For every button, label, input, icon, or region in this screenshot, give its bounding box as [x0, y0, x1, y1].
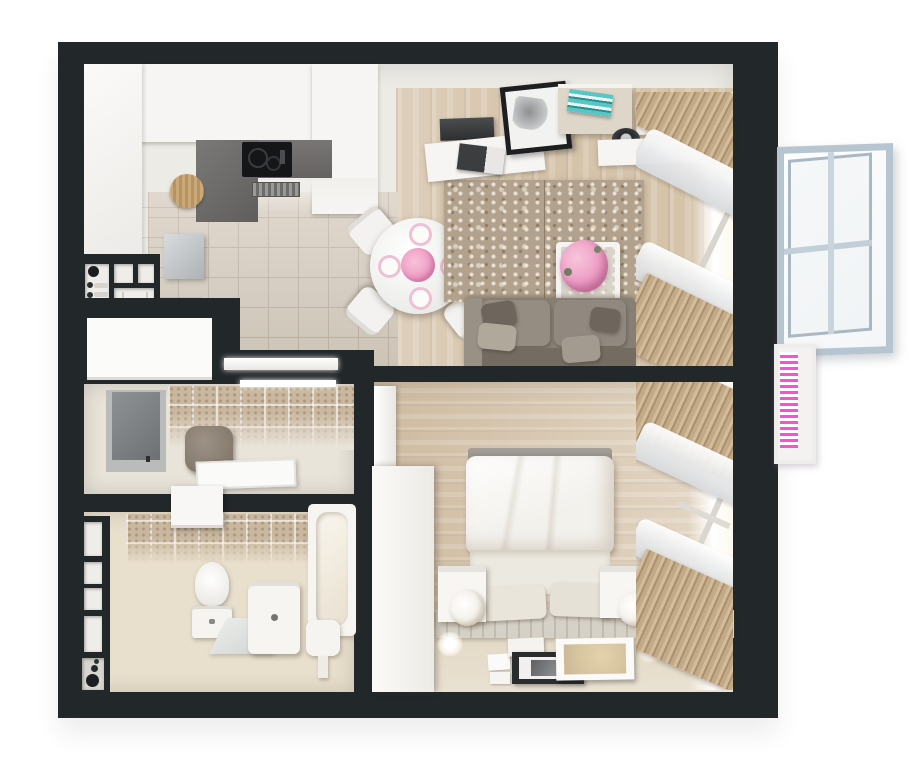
bedroom-radiator-panel [374, 386, 396, 466]
pink-bouquet [560, 240, 608, 292]
leaning-frame-large [556, 637, 635, 680]
pipe-icon [94, 659, 99, 664]
hall-alcove [106, 390, 166, 472]
open-casement-window [777, 143, 893, 357]
plate [409, 287, 432, 310]
throw-pillow [588, 306, 621, 334]
bath-stool [306, 620, 340, 656]
roll-icon [94, 283, 108, 288]
wall-light [436, 632, 464, 656]
bed-duvet [466, 456, 614, 554]
radiator-fins [780, 352, 798, 448]
bath-washer-box [171, 486, 223, 528]
cutting-board [170, 174, 204, 208]
pink-flower-centerpiece [401, 248, 435, 282]
roll-icon [94, 292, 108, 297]
flush-button-icon [209, 619, 215, 624]
induction-cooktop [242, 142, 292, 177]
socket-icon [146, 456, 150, 462]
vanity-sink [248, 582, 300, 654]
shelf-cell [138, 264, 154, 283]
alcove-shadow [112, 392, 160, 460]
window-mullion-vertical [828, 152, 834, 334]
plate [409, 223, 432, 246]
niche-slot [84, 562, 102, 584]
frame-sketch [511, 95, 549, 131]
hall-led-bar [240, 380, 336, 387]
throw-pillow [561, 334, 601, 363]
rug-seam [544, 180, 545, 302]
plate [378, 255, 401, 278]
wardrobe [372, 466, 434, 692]
stool-leg [318, 656, 328, 678]
frame-art [564, 643, 627, 674]
bathtub [308, 504, 356, 636]
bed-pillow [481, 584, 547, 621]
white-flower-bouquet [450, 590, 484, 626]
toilet-bowl [195, 562, 229, 606]
niche-slot [84, 616, 102, 652]
leaning-cards [490, 672, 510, 684]
magazine [457, 143, 506, 174]
bathtub-basin [316, 512, 348, 626]
pipe-icon [91, 665, 98, 672]
burner-icon [248, 148, 268, 168]
pot-icon [88, 266, 99, 277]
niche-pipes-cell [82, 658, 104, 690]
pipe-icon [86, 674, 99, 687]
sofa-backrest [464, 348, 636, 368]
burner-icon [266, 156, 281, 171]
leaf-dot [564, 268, 572, 276]
kitchen-door-slab-top [87, 318, 212, 380]
niche-slot [84, 522, 102, 556]
shelf-cell [114, 264, 133, 283]
floor-plan-render [0, 0, 910, 773]
room-hallway [84, 384, 354, 494]
leaf-dot [594, 246, 601, 253]
kitchen-tall-cabinet [84, 64, 142, 262]
throw-pillow [477, 322, 518, 352]
sofa [464, 298, 636, 368]
niche-slot [84, 588, 102, 610]
utensil-icon [280, 150, 285, 164]
wall-vertical-divider [354, 366, 374, 702]
jar-icon [87, 282, 93, 288]
room-bedroom [374, 382, 733, 692]
room-bathroom [84, 512, 354, 692]
oven-vent [252, 182, 300, 197]
bedroom-curtain-wall [636, 382, 733, 690]
fridge [164, 234, 204, 279]
living-curtain-wall [636, 92, 733, 368]
faucet-icon [271, 614, 278, 621]
leaning-cards [487, 653, 510, 670]
pink-striped-radiator [774, 344, 816, 464]
led-threshold [224, 358, 338, 370]
bath-wall-niches [76, 516, 110, 694]
door-mat [196, 458, 297, 489]
